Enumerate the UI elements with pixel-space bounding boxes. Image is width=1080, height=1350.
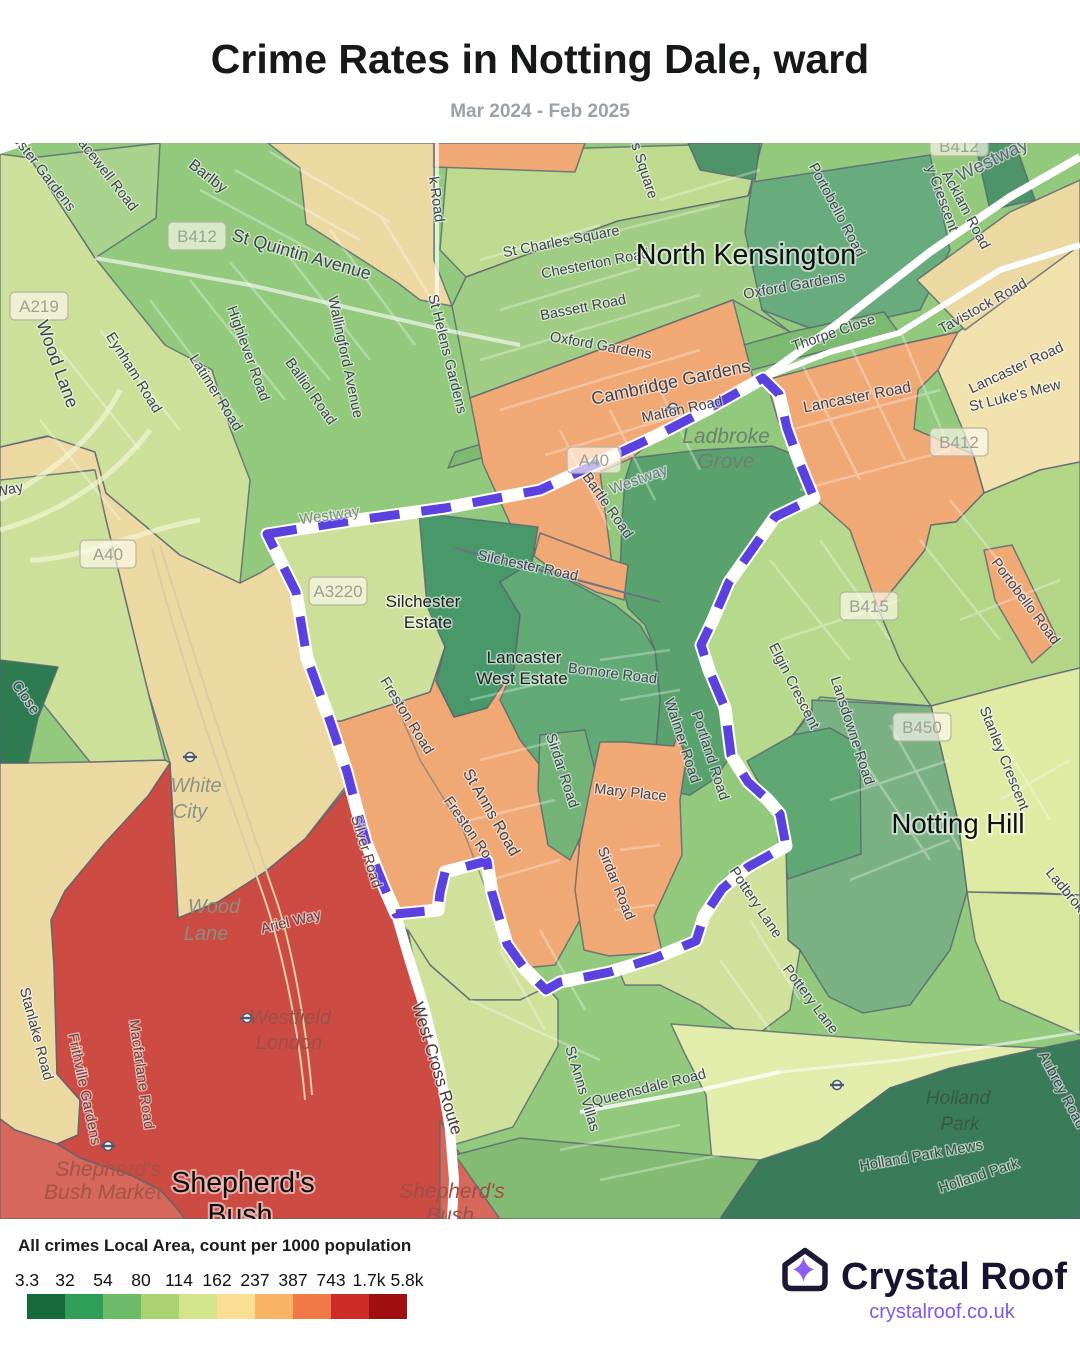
svg-text:North Kensington: North Kensington	[636, 239, 856, 271]
svg-text:Shepherd's: Shepherd's	[171, 1167, 314, 1199]
svg-text:B412: B412	[939, 143, 979, 156]
svg-text:White: White	[170, 775, 221, 797]
svg-text:Shepherd's: Shepherd's	[55, 1158, 161, 1181]
svg-text:B412: B412	[939, 433, 979, 452]
svg-text:A3220: A3220	[313, 582, 362, 601]
svg-text:Lane: Lane	[184, 923, 229, 945]
svg-text:Notting Hill: Notting Hill	[892, 808, 1025, 839]
svg-text:Westfield: Westfield	[249, 1007, 332, 1029]
svg-text:Grove: Grove	[697, 450, 754, 473]
svg-text:Silchester: Silchester	[386, 592, 461, 611]
svg-text:Holland: Holland	[926, 1088, 992, 1109]
svg-text:Ladbroke: Ladbroke	[682, 425, 770, 448]
svg-text:West Estate: West Estate	[476, 669, 567, 688]
svg-text:B415: B415	[849, 597, 889, 616]
svg-text:Estate: Estate	[404, 613, 452, 632]
svg-text:Shepherd's: Shepherd's	[399, 1180, 505, 1203]
svg-text:Bush: Bush	[426, 1204, 474, 1219]
svg-text:Lancaster: Lancaster	[487, 648, 562, 667]
svg-text:City: City	[173, 801, 208, 823]
svg-text:B450: B450	[902, 718, 942, 737]
svg-text:B412: B412	[177, 227, 217, 246]
svg-text:A40: A40	[93, 545, 123, 564]
svg-text:Bush Market: Bush Market	[44, 1181, 163, 1204]
svg-text:A40: A40	[579, 451, 609, 470]
svg-text:Park: Park	[940, 1114, 981, 1135]
svg-text:Bush: Bush	[208, 1199, 273, 1219]
svg-text:A219: A219	[19, 297, 59, 316]
svg-text:Wood: Wood	[188, 896, 241, 918]
svg-text:London: London	[256, 1032, 323, 1054]
